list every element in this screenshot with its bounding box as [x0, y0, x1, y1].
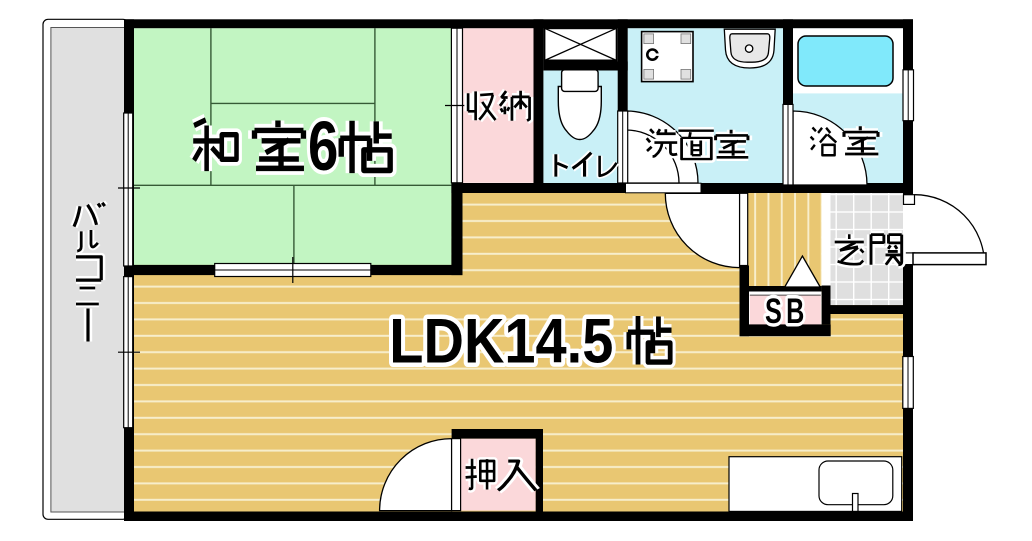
svg-text:LDK14.5: LDK14.5	[389, 305, 613, 376]
svg-text:6: 6	[308, 108, 338, 186]
